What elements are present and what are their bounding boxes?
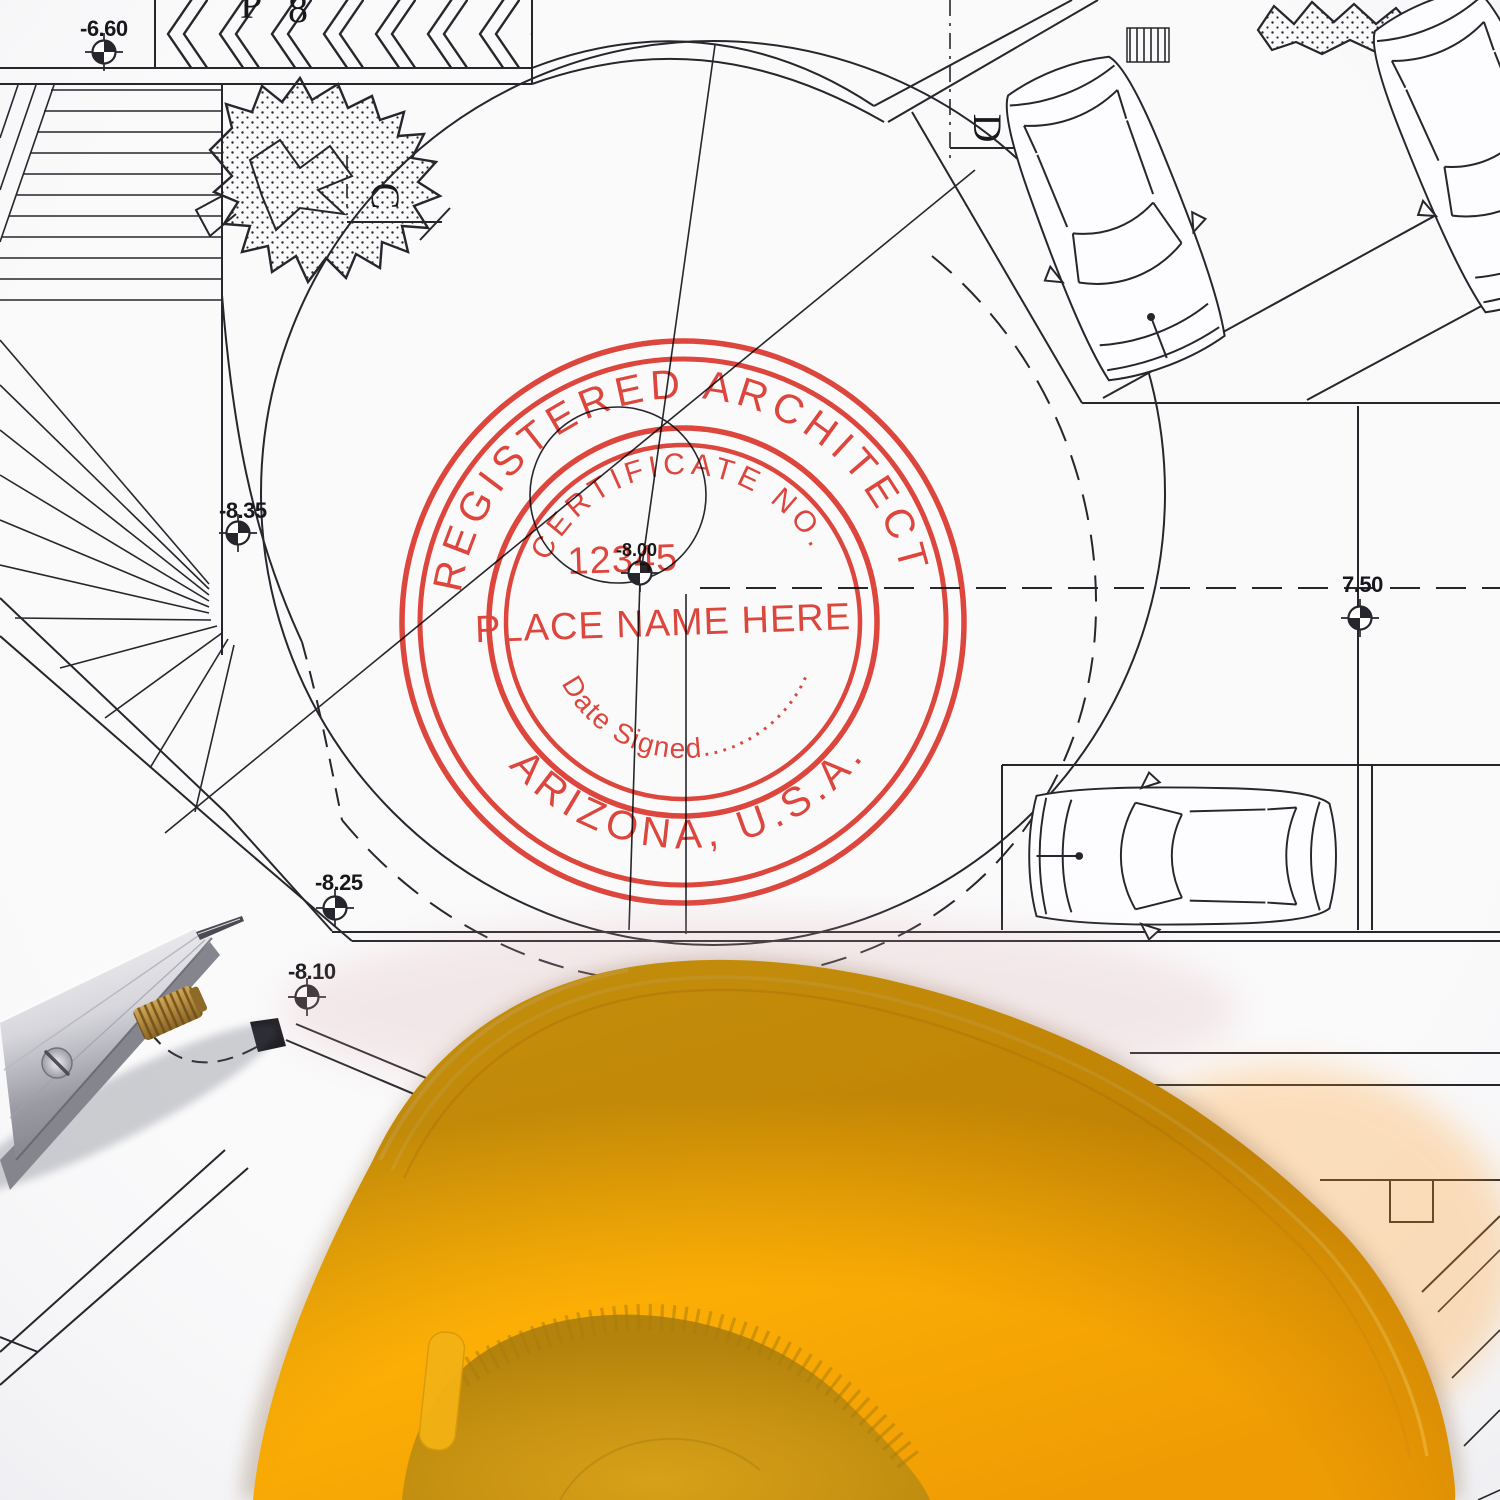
elevation-label: -8.25 [315,870,363,895]
partial-label-p: P [240,0,262,27]
chevron-paving-hatch [155,0,532,68]
partial-label-8: 8 [288,0,308,31]
elevation-label: 7.50 [1342,572,1383,597]
scene-canvas: P 8 [0,0,1500,1500]
section-label-d: D [965,114,1010,143]
elevation-label: -6.60 [80,16,128,41]
car-top-view [1029,773,1336,940]
section-label-c: C [363,183,408,210]
elevation-label: -8.35 [219,498,267,523]
photo-scene: P 8 [0,0,1500,1500]
stamp-certificate-number: 12345 [567,537,679,583]
